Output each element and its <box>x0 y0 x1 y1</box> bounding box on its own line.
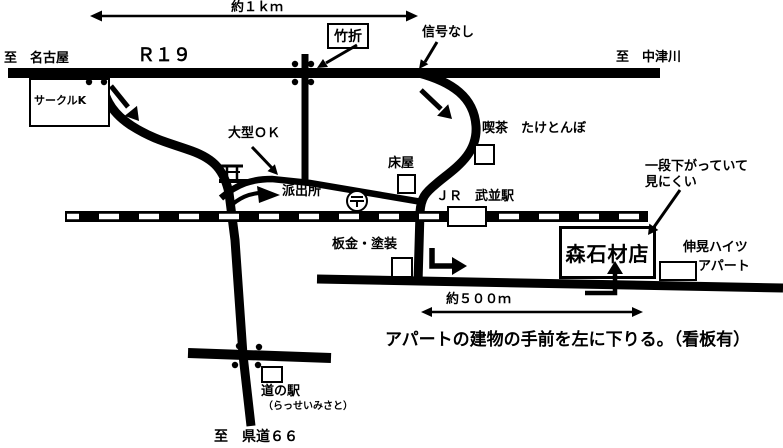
circle-k-label: サークルK <box>34 95 86 107</box>
distance-500m-label: 約５００ｍ <box>446 293 511 307</box>
cafe-building <box>474 144 495 165</box>
cafe-label: 喫茶 たけとんぼ <box>482 122 586 136</box>
barber-building <box>397 174 416 194</box>
road-police-branch <box>221 179 422 202</box>
route-r19-label: Ｒ１９ <box>137 46 191 66</box>
body-shop-label: 板金・塗装 <box>332 238 397 252</box>
barber-label: 床屋 <box>388 157 414 171</box>
jr-station-building <box>447 206 487 227</box>
to-nakatsugawa-label: 至 中津川 <box>616 51 681 65</box>
distance-1km-label: 約１ｋｍ <box>231 1 283 15</box>
mori-stone-shop-box: 森石材店 <box>559 226 656 279</box>
hard-to-see-note-line1: 一段下がっていて <box>645 160 748 174</box>
road-right-curve <box>418 73 476 283</box>
michinoeki-sub-label: （らっせいみさと） <box>263 401 353 412</box>
post-office-icon <box>347 191 367 211</box>
large-ok-label: 大型ＯＫ <box>228 127 280 141</box>
direction-map: 至 名古屋 Ｒ１９ 約１ｋｍ 竹折 信号なし 至 中津川 サークルK 大型ＯＫ … <box>0 0 783 448</box>
road-michinoeki <box>188 353 331 358</box>
to-kendo66-label: 至 県道６６ <box>214 430 298 445</box>
to-nagoya-label: 至 名古屋 <box>4 52 69 66</box>
jr-station-label: ＪＲ 武並駅 <box>436 190 514 204</box>
apartment-label-line1: 伸晃ハイツ <box>683 241 748 255</box>
instruction-label: アパートの建物の手前を左に下りる。（看板有） <box>385 331 750 350</box>
michinoeki-label: 道の駅 <box>261 385 300 399</box>
road-bottom <box>317 279 783 288</box>
map-roads-layer <box>0 0 783 448</box>
apartment-building <box>659 261 697 281</box>
body-shop-building <box>391 257 413 278</box>
takeori-junction-box: 竹折 <box>327 23 369 49</box>
michinoeki-building <box>261 366 283 383</box>
hard-to-see-note-line2: 見にくい <box>645 176 697 190</box>
apartment-label-line2: アパート <box>698 260 750 274</box>
mori-stone-shop-label: 森石材店 <box>566 238 650 267</box>
police-box-label: 派出所 <box>282 185 321 199</box>
no-signal-label: 信号なし <box>422 26 474 40</box>
